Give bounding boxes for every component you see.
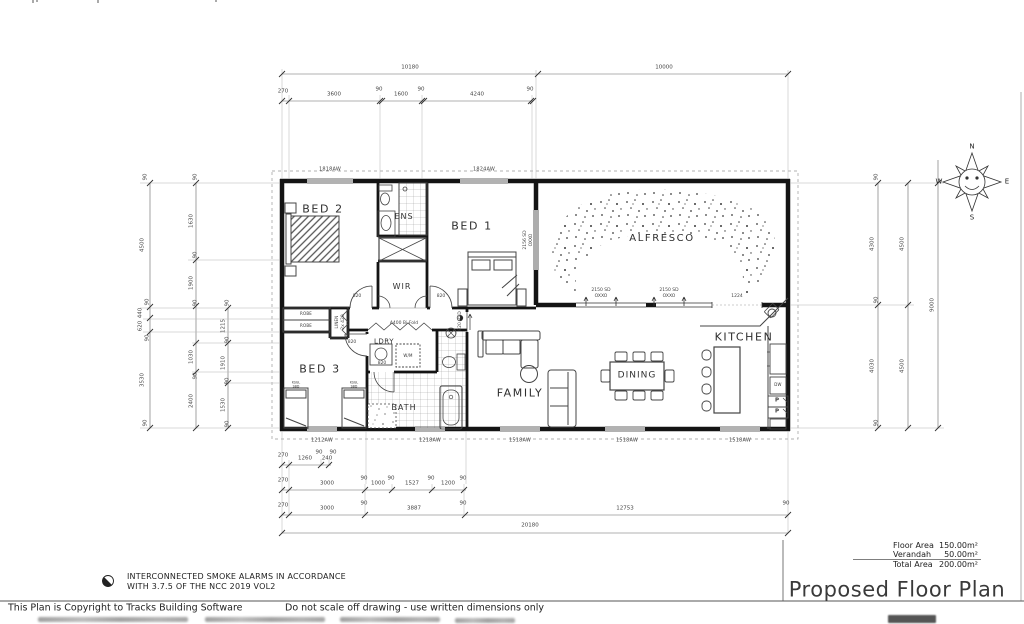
cutoff-text-smudge xyxy=(888,615,936,623)
robe-label: ROBE xyxy=(300,312,312,316)
dim-label: 1600 xyxy=(394,92,408,98)
room-label-kitchen: KITCHEN xyxy=(715,332,774,343)
dim-label: 4500 xyxy=(900,237,906,251)
dim-label: 1030 xyxy=(189,350,195,364)
dim-label: 90 xyxy=(783,501,790,507)
dim-label: 4300 xyxy=(870,237,876,251)
cutoff-text-smudge xyxy=(455,618,515,623)
disclaimer-text: Do not scale off drawing - use written d… xyxy=(285,603,544,613)
dim-label: 90 xyxy=(225,337,231,344)
area-floor-label: Floor Area xyxy=(893,542,934,550)
pantry-label: P xyxy=(775,409,779,415)
opening-label: 1224 xyxy=(731,295,742,300)
dim-label: 270 xyxy=(278,89,289,95)
linen-label: LINEN xyxy=(335,316,339,329)
sliding-door-label: OXXO xyxy=(663,295,676,300)
dim-label: 270 xyxy=(278,453,289,459)
area-total-value: 200.00m² xyxy=(939,561,978,569)
smoke-alarm-note: INTERCONNECTED SMOKE ALARMS IN ACCORDANC… xyxy=(127,573,346,581)
compass-rose xyxy=(943,153,1001,211)
dim-label: 2400 xyxy=(189,394,195,408)
dim-label: 3887 xyxy=(407,506,421,512)
dim-label: 90 xyxy=(388,476,395,482)
washing-machine-label: W/M xyxy=(403,354,412,358)
dim-label: 10000 xyxy=(655,65,673,71)
room-label-family: FAMILY xyxy=(497,388,544,399)
dishwasher-label: DW xyxy=(774,383,781,387)
dim-label: 90 xyxy=(460,476,467,482)
window-label: 1518AW xyxy=(509,439,531,444)
dim-label: 90 xyxy=(143,174,149,181)
room-label-bed1: BED 1 xyxy=(451,221,492,232)
room-label-bath: BATH xyxy=(391,404,416,412)
window-label: 1212AW xyxy=(311,439,333,444)
bed3-bed-label: SBD xyxy=(351,385,358,388)
dim-label: 4500 xyxy=(900,359,906,373)
dim-label: 440 xyxy=(138,308,144,319)
door-label: 2x 420 xyxy=(342,314,347,330)
sliding-door-label: 2150 SD xyxy=(659,289,678,294)
dim-label: 90 xyxy=(225,421,231,428)
sheet-edge-marks xyxy=(33,0,216,3)
dim-label: 9000 xyxy=(930,298,936,312)
sliding-doors xyxy=(467,297,762,332)
dim-label: 1527 xyxy=(405,481,419,487)
dim-label: 4500 xyxy=(140,238,146,252)
dim-label: 270 xyxy=(278,478,289,484)
dim-label: 1530 xyxy=(221,398,227,412)
room-label-dining: DINING xyxy=(618,372,657,381)
door-label: 820 xyxy=(353,295,362,300)
dim-label: 1260 xyxy=(298,456,312,462)
sliding-door-label: OXXO xyxy=(530,234,535,247)
dim-label: 90 xyxy=(428,476,435,482)
area-total-label: Total Area xyxy=(893,561,933,569)
room-label-alfresco: ALFRESCO xyxy=(629,234,694,244)
dim-label: 90 xyxy=(330,450,337,456)
dim-label: 90 xyxy=(193,300,199,307)
area-verandah-value: 50.00m² xyxy=(944,551,978,559)
dim-label: 1630 xyxy=(189,214,195,228)
dim-label: 90 xyxy=(874,420,880,427)
dim-label: 90 xyxy=(527,87,534,93)
dim-label: 3000 xyxy=(320,506,334,512)
window-label: 1218AW xyxy=(419,439,441,444)
compass-east-label: E xyxy=(1005,179,1009,186)
page-title: Proposed Floor Plan xyxy=(789,580,1005,601)
dim-label: 3000 xyxy=(320,481,334,487)
door-label: 820 xyxy=(437,295,446,300)
pantry-label: P xyxy=(775,398,779,404)
dim-label: 90 xyxy=(193,174,199,181)
dim-label: 1200 xyxy=(441,481,455,487)
dimension-witness-lines xyxy=(140,69,944,533)
dim-label: 90 xyxy=(225,300,231,307)
cutoff-text-smudge xyxy=(340,617,440,622)
copyright-text: This Plan is Copyright to Tracks Buildin… xyxy=(8,603,243,613)
dim-label: 20180 xyxy=(521,523,539,529)
dim-label: 90 xyxy=(874,297,880,304)
cutoff-text-smudge xyxy=(205,617,325,622)
window-label: 1818AW xyxy=(319,168,341,173)
dim-label: 1900 xyxy=(189,276,195,290)
compass-west-label: W xyxy=(936,179,943,186)
cutoff-text-smudge xyxy=(38,617,188,622)
window-label: 1518AW xyxy=(729,439,751,444)
dim-label: 3600 xyxy=(327,92,341,98)
bed3-bed-label: SBD xyxy=(293,385,300,388)
dim-label: 12753 xyxy=(616,506,634,512)
dim-label: 620 xyxy=(138,321,144,332)
dim-label: 90 xyxy=(145,299,151,306)
dim-label: 90 xyxy=(225,378,231,385)
room-label-ens: ENS xyxy=(394,213,413,221)
sliding-door-label: 2150 SD xyxy=(591,289,610,294)
dim-label: 4030 xyxy=(870,359,876,373)
door-label: 820 RSD xyxy=(459,311,464,330)
dim-label: 90 xyxy=(874,174,880,181)
smoke-alarm-icon xyxy=(102,576,113,587)
dim-label: 90 xyxy=(460,501,467,507)
dim-label: 240 xyxy=(322,456,333,462)
door-label: 820 xyxy=(378,362,387,367)
door-label: A400 Bi-Fold xyxy=(390,322,418,327)
floor-plan-sheet: BED 2 ENS BED 1 WIR ALFRESCO BED 3 FAMIL… xyxy=(0,0,1024,624)
room-label-wir: WIR xyxy=(393,283,412,291)
dim-label: 3530 xyxy=(140,373,146,387)
area-floor-value: 150.00m² xyxy=(939,542,978,550)
compass-south-label: S xyxy=(970,215,974,222)
room-label-bed3: BED 3 xyxy=(299,364,340,375)
smoke-alarm-note: WITH 3.7.5 OF THE NCC 2019 VOL2 xyxy=(127,583,276,591)
dim-label: 90 xyxy=(145,335,151,342)
window-label: 1824AW xyxy=(473,168,495,173)
dim-label: 4240 xyxy=(470,92,484,98)
dim-label: 90 xyxy=(361,501,368,507)
door-label: 820 xyxy=(348,341,357,346)
sliding-door-label: OXXO xyxy=(595,295,608,300)
dim-label: 90 xyxy=(418,87,425,93)
dim-label: 1910 xyxy=(221,356,227,370)
dim-label: 270 xyxy=(278,503,289,509)
robe-label: ROBE xyxy=(300,324,312,328)
floorplan-drawing xyxy=(0,0,1024,624)
room-label-ldry: LDRY xyxy=(374,339,394,346)
compass-north-label: N xyxy=(969,144,974,151)
sliding-door-label: 2156 SD xyxy=(524,230,529,249)
dim-label: 10180 xyxy=(401,65,419,71)
dim-label: 1215 xyxy=(221,319,227,333)
dim-label: 90 xyxy=(193,252,199,259)
dim-label: 90 xyxy=(361,476,368,482)
dim-label: 90 xyxy=(143,420,149,427)
dim-label: 90 xyxy=(193,373,199,380)
window-label: 1518AW xyxy=(616,439,638,444)
dim-label: 90 xyxy=(376,87,383,93)
room-label-bed2: BED 2 xyxy=(302,204,343,215)
dim-label: 1000 xyxy=(371,481,385,487)
area-verandah-label: Verandah xyxy=(893,551,931,559)
